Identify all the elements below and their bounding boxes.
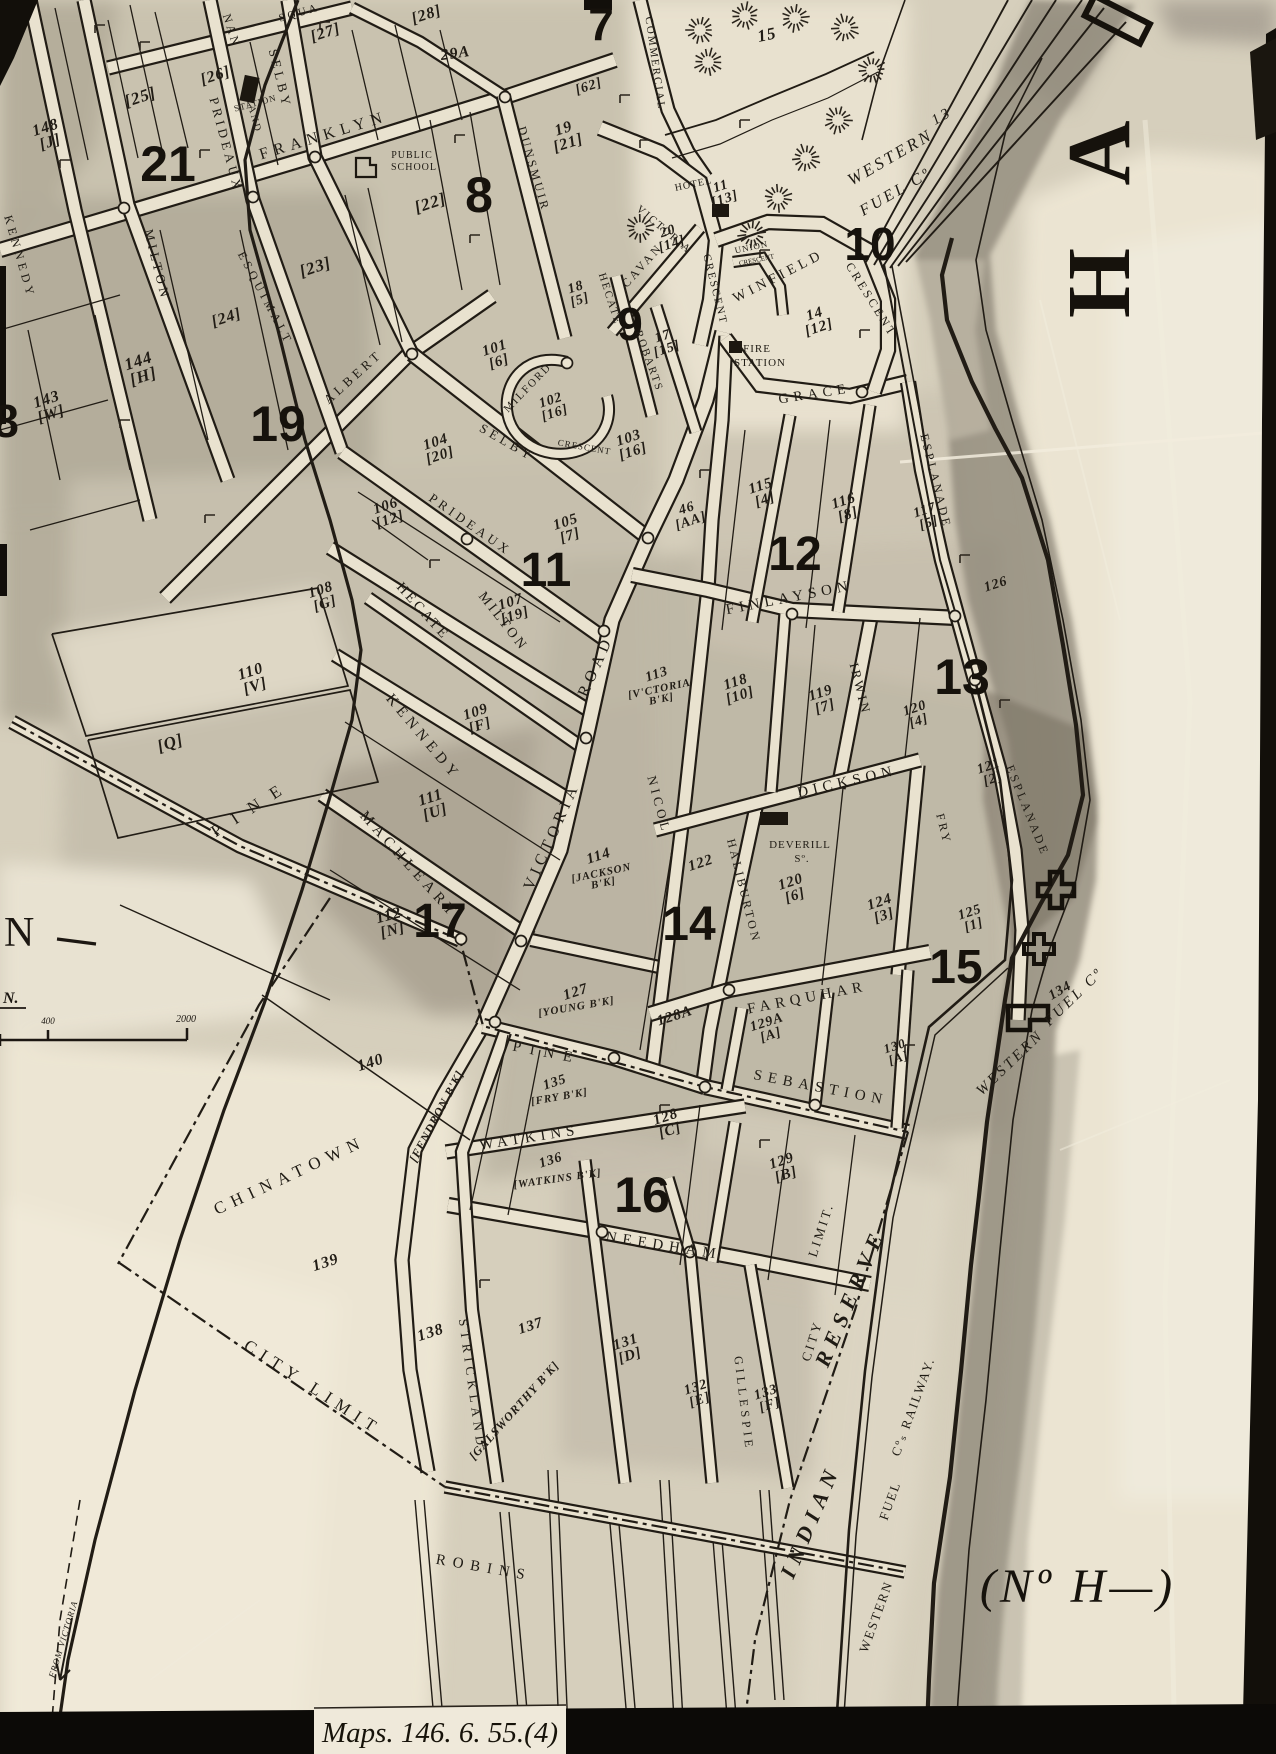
svg-text:H: H: [1050, 248, 1149, 318]
svg-text:11: 11: [521, 544, 572, 597]
svg-text:FIRE: FIRE: [743, 343, 771, 355]
svg-text:16: 16: [614, 1167, 670, 1223]
svg-text:STATION: STATION: [734, 357, 786, 369]
svg-text:DEVERILL: DEVERILL: [769, 839, 831, 851]
svg-text:SCHOOL: SCHOOL: [391, 162, 437, 173]
svg-text:21: 21: [140, 136, 196, 192]
svg-text:12: 12: [768, 528, 821, 581]
svg-text:19: 19: [250, 396, 306, 452]
svg-text:7: 7: [588, 0, 614, 50]
svg-text:Maps. 146. 6. 55.(4): Maps. 146. 6. 55.(4): [321, 1717, 558, 1749]
svg-text:8: 8: [465, 167, 493, 223]
svg-text:13: 13: [934, 649, 990, 705]
svg-text:8: 8: [0, 395, 19, 447]
svg-text:14: 14: [662, 898, 716, 951]
svg-text:400: 400: [41, 1016, 55, 1026]
svg-text:Sº.: Sº.: [794, 853, 809, 865]
svg-text:PUBLIC: PUBLIC: [391, 150, 433, 161]
svg-text:(Nº H—): (Nº H—): [980, 1560, 1176, 1613]
svg-text:15: 15: [929, 941, 982, 994]
svg-text:N.: N.: [2, 990, 19, 1007]
svg-text:2000: 2000: [176, 1014, 196, 1025]
svg-text:15: 15: [756, 23, 779, 46]
svg-text:N: N: [4, 910, 34, 956]
svg-text:A: A: [1050, 121, 1149, 186]
